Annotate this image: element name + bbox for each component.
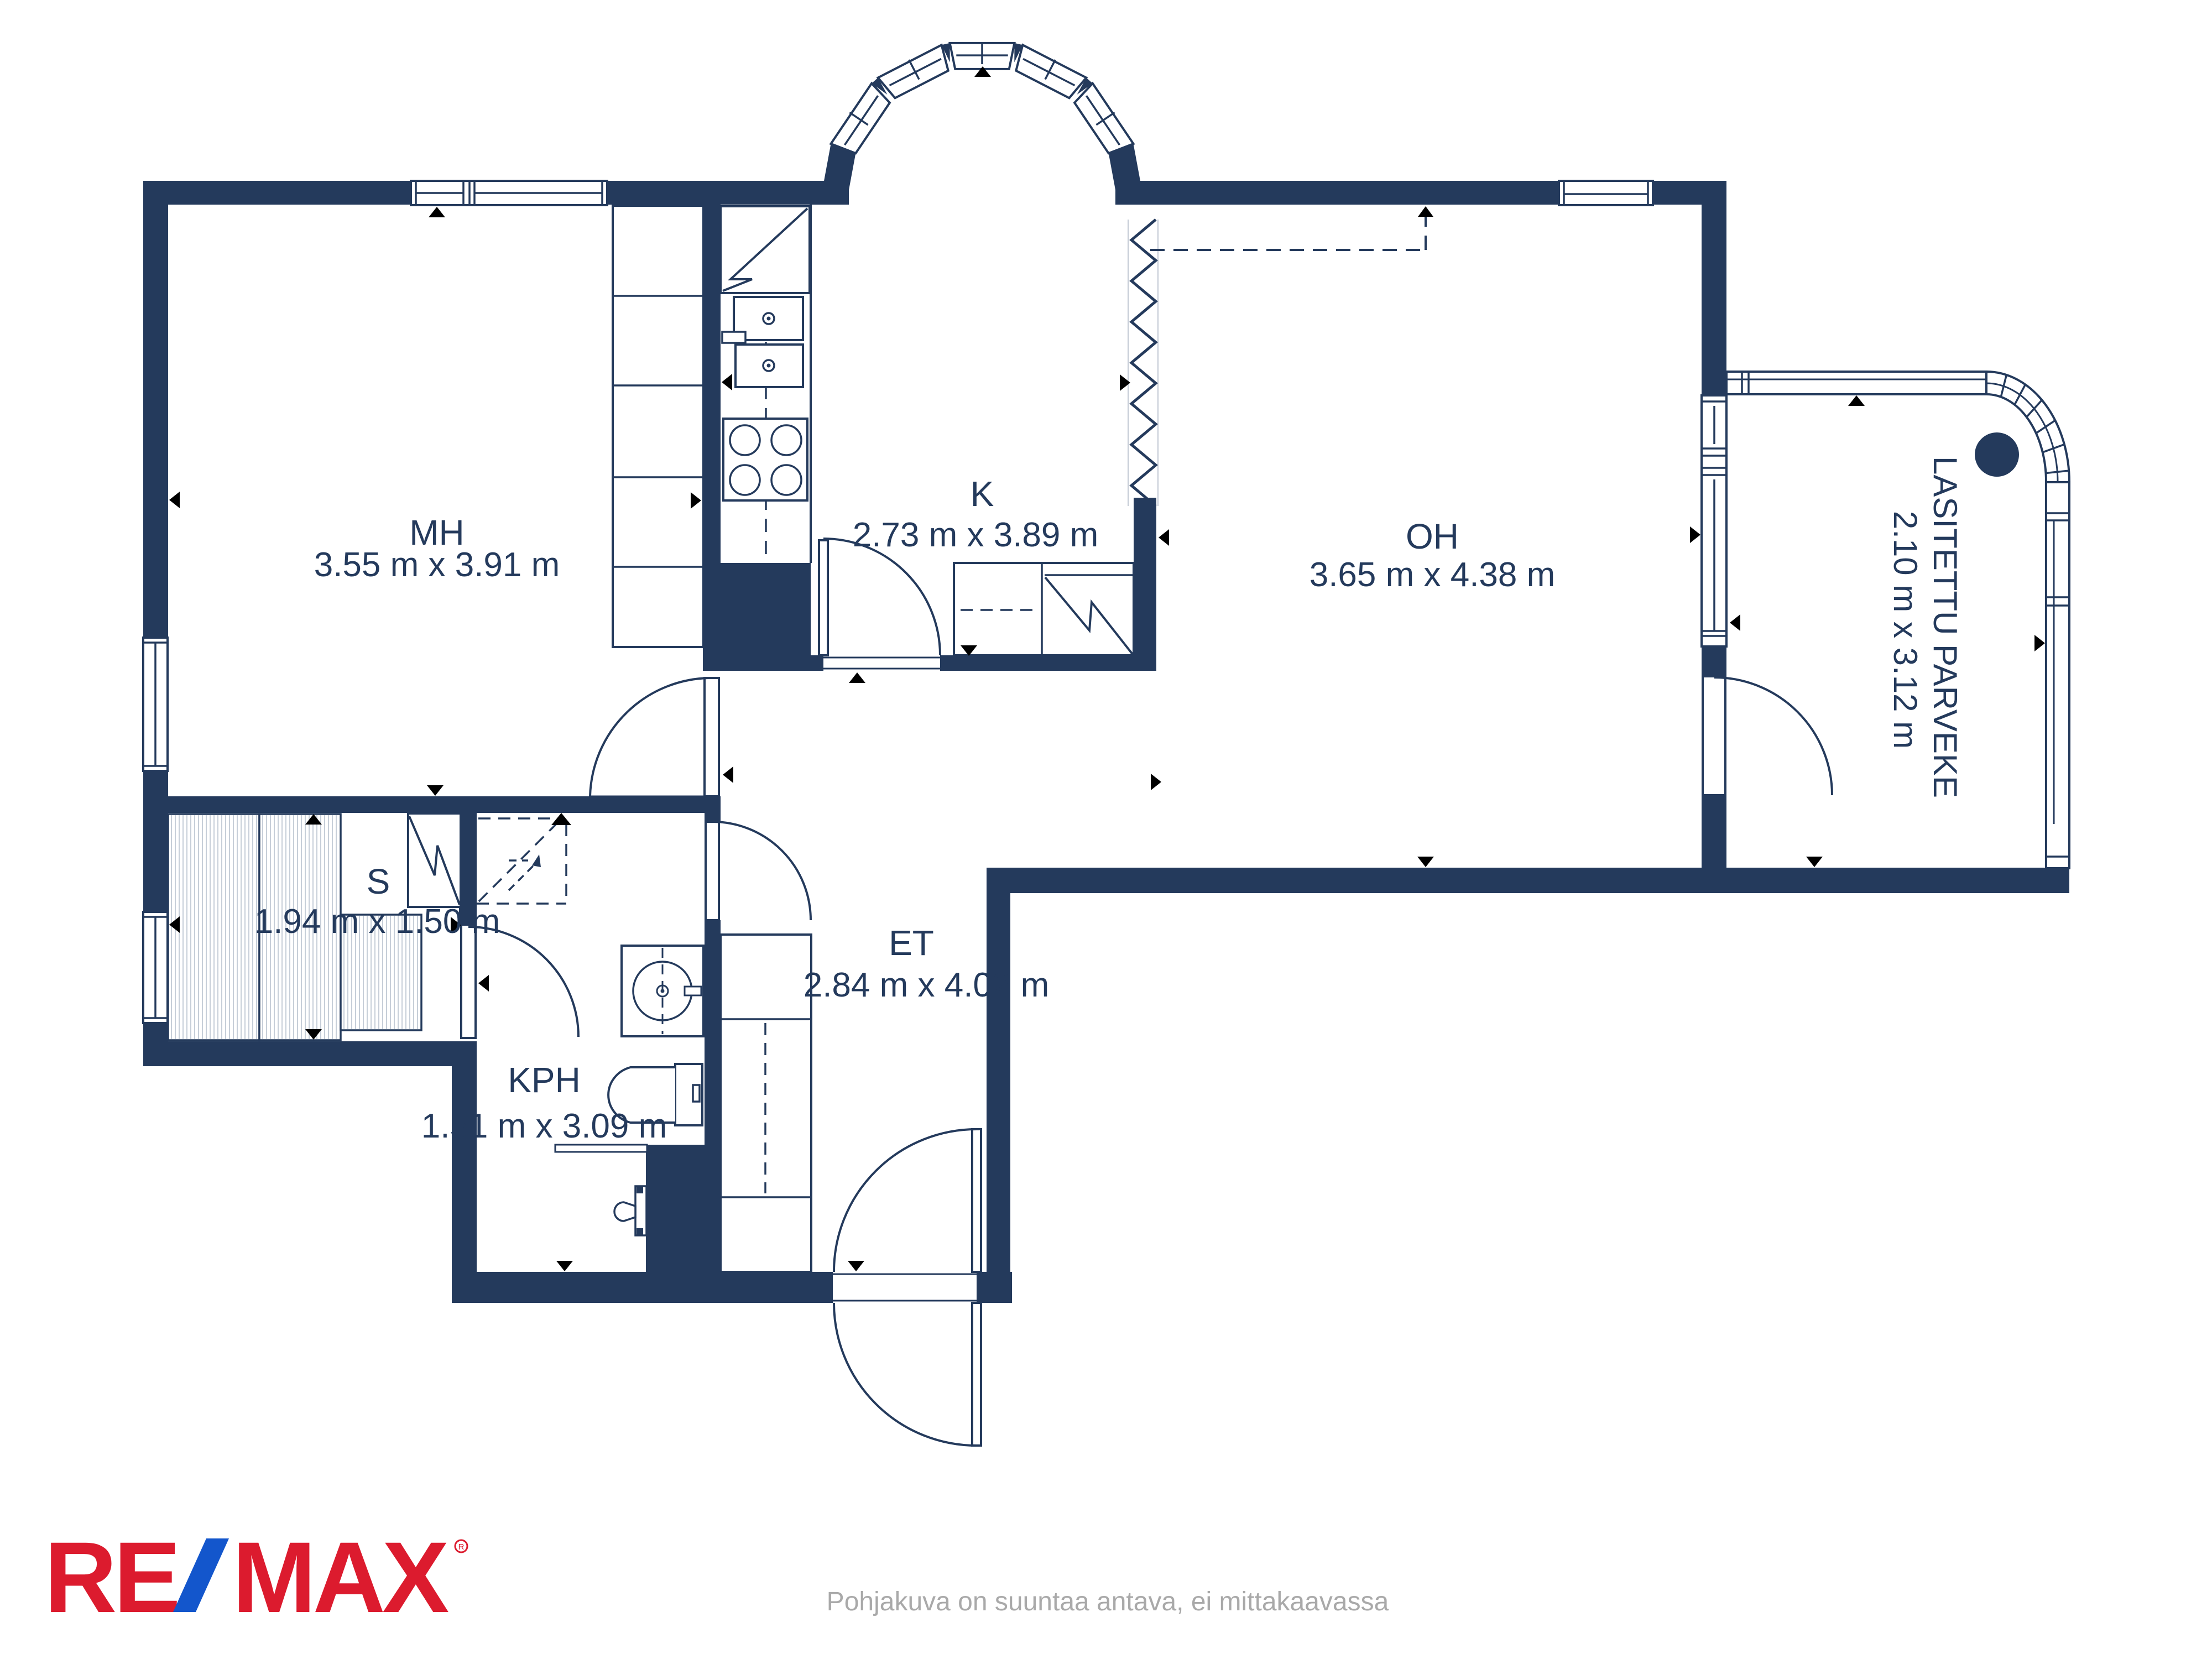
- svg-text:3.65 m x 4.38 m: 3.65 m x 4.38 m: [1310, 556, 1556, 594]
- svg-text:S: S: [367, 862, 390, 901]
- svg-text:LASITETTU PARVEKE: LASITETTU PARVEKE: [1927, 456, 1964, 798]
- svg-text:K: K: [971, 474, 994, 514]
- svg-text:R: R: [458, 1542, 465, 1552]
- svg-text:3.55 m x 3.91 m: 3.55 m x 3.91 m: [314, 546, 560, 584]
- svg-text:2.10 m x 3.12 m: 2.10 m x 3.12 m: [1887, 511, 1924, 749]
- svg-text:RE: RE: [44, 1521, 178, 1634]
- svg-text:1.94 m x 1.50 m: 1.94 m x 1.50 m: [254, 902, 500, 941]
- svg-text:2.84 m x 4.02 m: 2.84 m x 4.02 m: [804, 966, 1050, 1004]
- svg-text:OH: OH: [1406, 517, 1459, 556]
- svg-text:2.73 m x 3.89 m: 2.73 m x 3.89 m: [853, 516, 1099, 554]
- svg-text:Pohjakuva on suuntaa antava, e: Pohjakuva on suuntaa antava, ei mittakaa…: [827, 1587, 1389, 1616]
- svg-text:MAX: MAX: [232, 1521, 448, 1634]
- svg-text:1.51 m x 3.09 m: 1.51 m x 3.09 m: [421, 1107, 667, 1145]
- svg-text:ET: ET: [889, 923, 934, 963]
- svg-text:KPH: KPH: [508, 1060, 581, 1100]
